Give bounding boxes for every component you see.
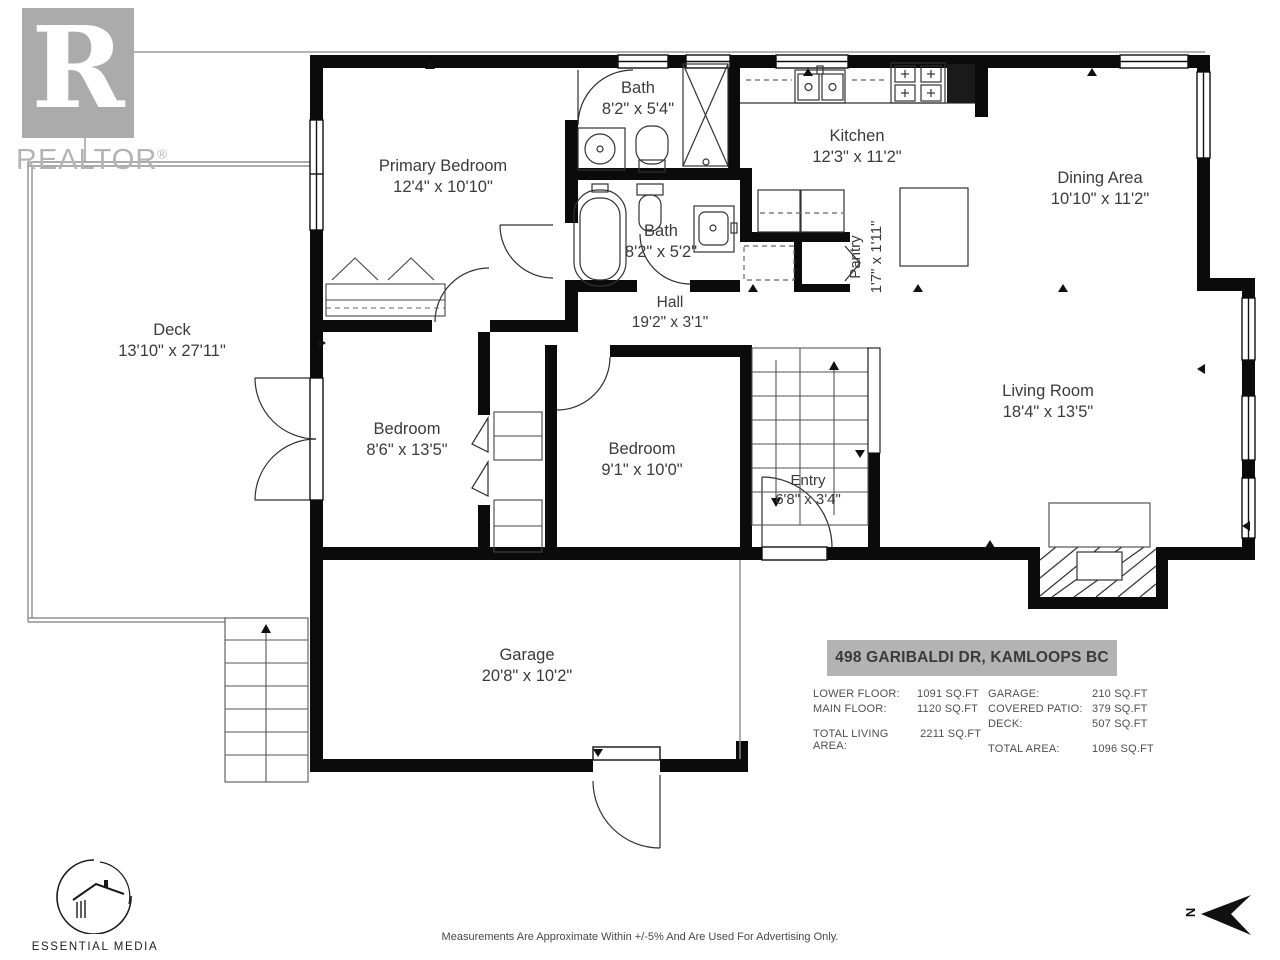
north-arrow: N [1183,893,1258,938]
room-dims: 8'2" x 5'2" [625,242,697,263]
room-label-dining-area: Dining Area 10'10" x 11'2" [1051,168,1149,210]
room-dims: 9'1" x 10'0" [601,460,682,481]
room-label-bath-lower: Bath 8'2" x 5'2" [625,221,697,263]
room-label-living-room: Living Room 18'4" x 13'5" [1002,381,1094,423]
area-value: 379 SQ.FT [1092,703,1160,715]
room-dims: 19'2" x 3'1" [632,313,708,333]
deck-outline [28,162,312,622]
area-row: MAIN FLOOR: 1120 SQ.FT [813,703,985,715]
disclaimer-text: Measurements Are Approximate Within +/-5… [0,931,1280,943]
room-label-kitchen: Kitchen 12'3" x 11'2" [812,126,901,168]
doors [255,70,860,848]
room-label-entry: Entry 6'8" x 3'4" [775,471,841,509]
room-name: Bedroom [366,419,447,440]
area-value: 1120 SQ.FT [917,703,985,715]
room-dims: 6'8" x 3'4" [775,490,841,509]
area-row: LOWER FLOOR: 1091 SQ.FT [813,688,985,700]
area-label: COVERED PATIO: [988,703,1083,715]
room-dims: 12'3" x 11'2" [812,147,901,168]
floor-plan-page: { "branding": { "realtor_logo_letter": "… [0,0,1280,960]
area-label: TOTAL AREA: [988,743,1060,755]
area-summary-left: LOWER FLOOR: 1091 SQ.FT MAIN FLOOR: 1120… [813,688,985,755]
room-dims: 8'2" x 5'4" [602,99,674,120]
room-dims: 13'10" x 27'11" [118,341,226,362]
room-dims: 8'6" x 13'5" [366,440,447,461]
room-name: Dining Area [1051,168,1149,189]
vendor-house-icon [30,858,160,934]
area-label: TOTAL LIVING AREA: [813,728,920,752]
area-value: 2211 SQ.FT [920,728,985,752]
realtor-block-icon: R [22,8,134,138]
room-label-deck: Deck 13'10" x 27'11" [118,320,226,362]
room-name: Entry [775,471,841,490]
room-name: Living Room [1002,381,1094,402]
room-label-garage: Garage 20'8" x 10'2" [482,645,573,687]
room-name: Pantry [845,221,866,294]
area-row-total: TOTAL AREA: 1096 SQ.FT [988,743,1160,755]
area-row-total: TOTAL LIVING AREA: 2211 SQ.FT [813,728,985,752]
room-label-bath-upper: Bath 8'2" x 5'4" [602,78,674,120]
area-label: MAIN FLOOR: [813,703,887,715]
area-row: GARAGE: 210 SQ.FT [988,688,1160,700]
room-name: Primary Bedroom [379,156,507,177]
deck-stairs [225,618,308,782]
realtor-r-letter: R [31,13,124,125]
area-value: 1091 SQ.FT [917,688,985,700]
room-name: Hall [632,293,708,313]
room-name: Kitchen [812,126,901,147]
area-label: LOWER FLOOR: [813,688,900,700]
room-name: Bedroom [601,439,682,460]
area-value: 507 SQ.FT [1092,718,1160,730]
realtor-wordmark: REALTOR® [16,144,176,177]
realtor-logo: R REALTOR® [16,8,176,177]
room-name: Bath [625,221,697,242]
area-value: 210 SQ.FT [1092,688,1160,700]
closets [326,258,542,552]
room-dims: 10'10" x 11'2" [1051,189,1149,210]
room-label-primary-bedroom: Primary Bedroom 12'4" x 10'10" [379,156,507,198]
room-dims: 12'4" x 10'10" [379,177,507,198]
room-label-pantry: Pantry 1'7" x 1'11" [845,221,887,294]
area-row: COVERED PATIO: 379 SQ.FT [988,703,1160,715]
room-dims: 18'4" x 13'5" [1002,402,1094,423]
room-label-bedroom-middle: Bedroom 9'1" x 10'0" [601,439,682,481]
area-value: 1096 SQ.FT [1092,743,1160,755]
fireplace [1028,503,1168,609]
room-dims: 1'7" x 1'11" [866,221,887,294]
room-name: Garage [482,645,573,666]
address-banner: 498 GARIBALDI DR, KAMLOOPS BC [827,640,1117,676]
room-dims: 20'8" x 10'2" [482,666,573,687]
room-label-bedroom-west: Bedroom 8'6" x 13'5" [366,419,447,461]
room-label-hall: Hall 19'2" x 3'1" [632,293,708,333]
area-label: DECK: [988,718,1023,730]
room-name: Bath [602,78,674,99]
registered-mark: ® [157,146,168,161]
north-label: N [1183,908,1198,917]
room-name: Deck [118,320,226,341]
area-label: GARAGE: [988,688,1040,700]
area-row: DECK: 507 SQ.FT [988,718,1160,730]
area-summary-right: GARAGE: 210 SQ.FT COVERED PATIO: 379 SQ.… [988,688,1160,758]
